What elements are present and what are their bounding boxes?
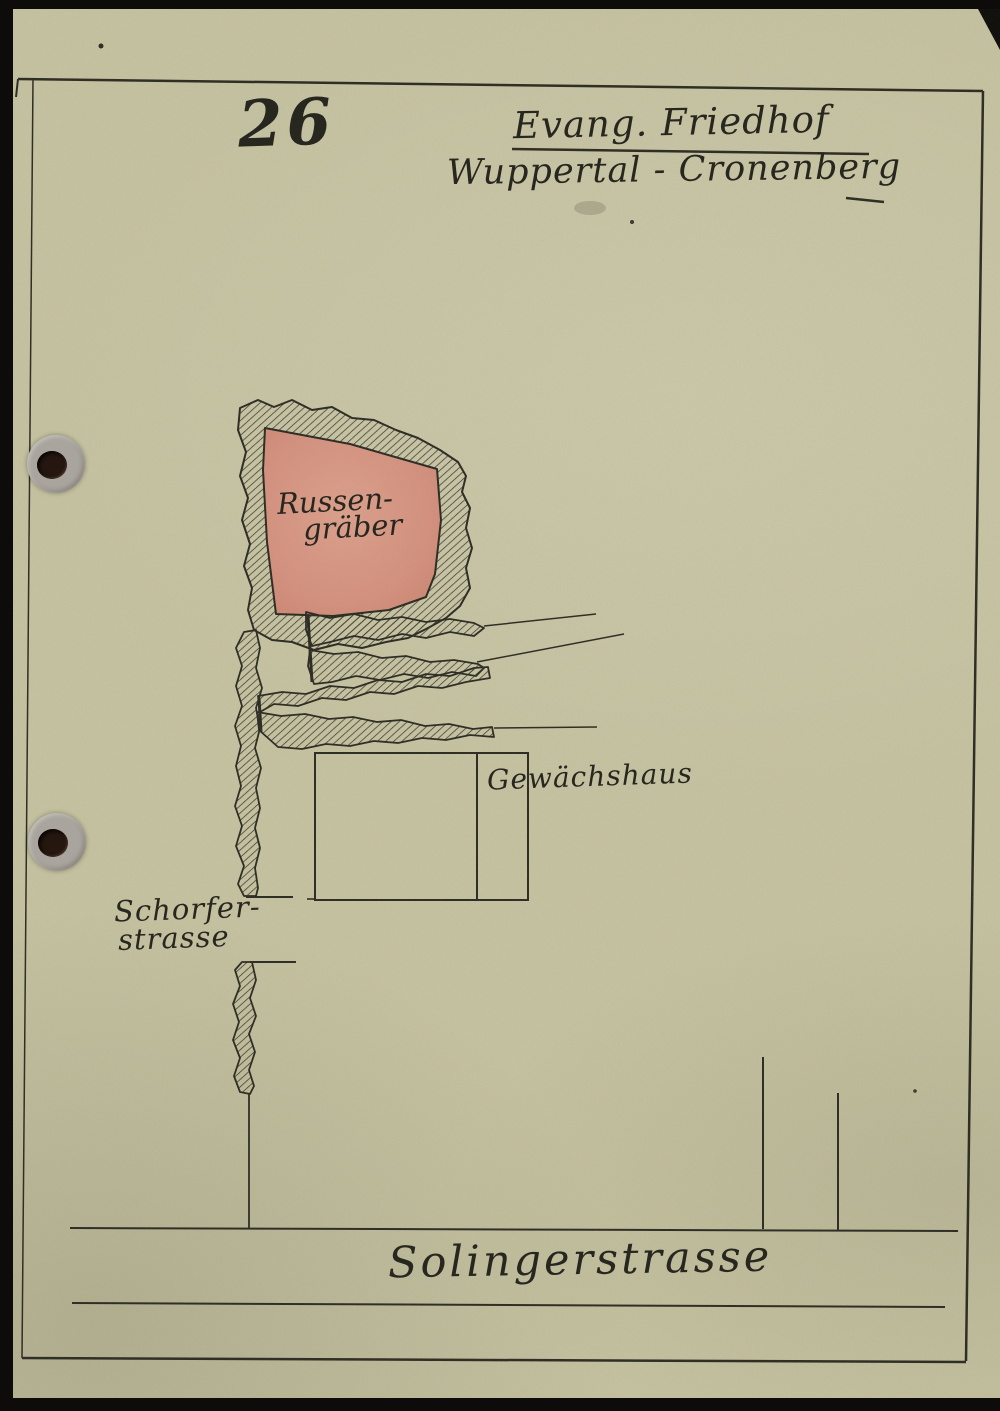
hole-punch-top	[27, 435, 85, 493]
page-number: 26	[237, 90, 336, 157]
schorferstrasse-label-line2: strasse	[118, 922, 231, 955]
paper-sheet	[13, 9, 1000, 1398]
page-title: Evang. Friedhof	[513, 101, 830, 145]
page-subtitle: Wuppertal - Cronenberg	[447, 150, 902, 191]
greenhouse-label: Gewächshaus	[487, 759, 694, 794]
solingerstrasse-label: Solingerstrasse	[388, 1236, 773, 1286]
hole-punch-bottom	[28, 813, 86, 871]
russian-graves-label-line2: gräber	[302, 510, 403, 544]
archival-map-page: 26 Evang. Friedhof Wuppertal - Cronenber…	[0, 0, 1000, 1411]
